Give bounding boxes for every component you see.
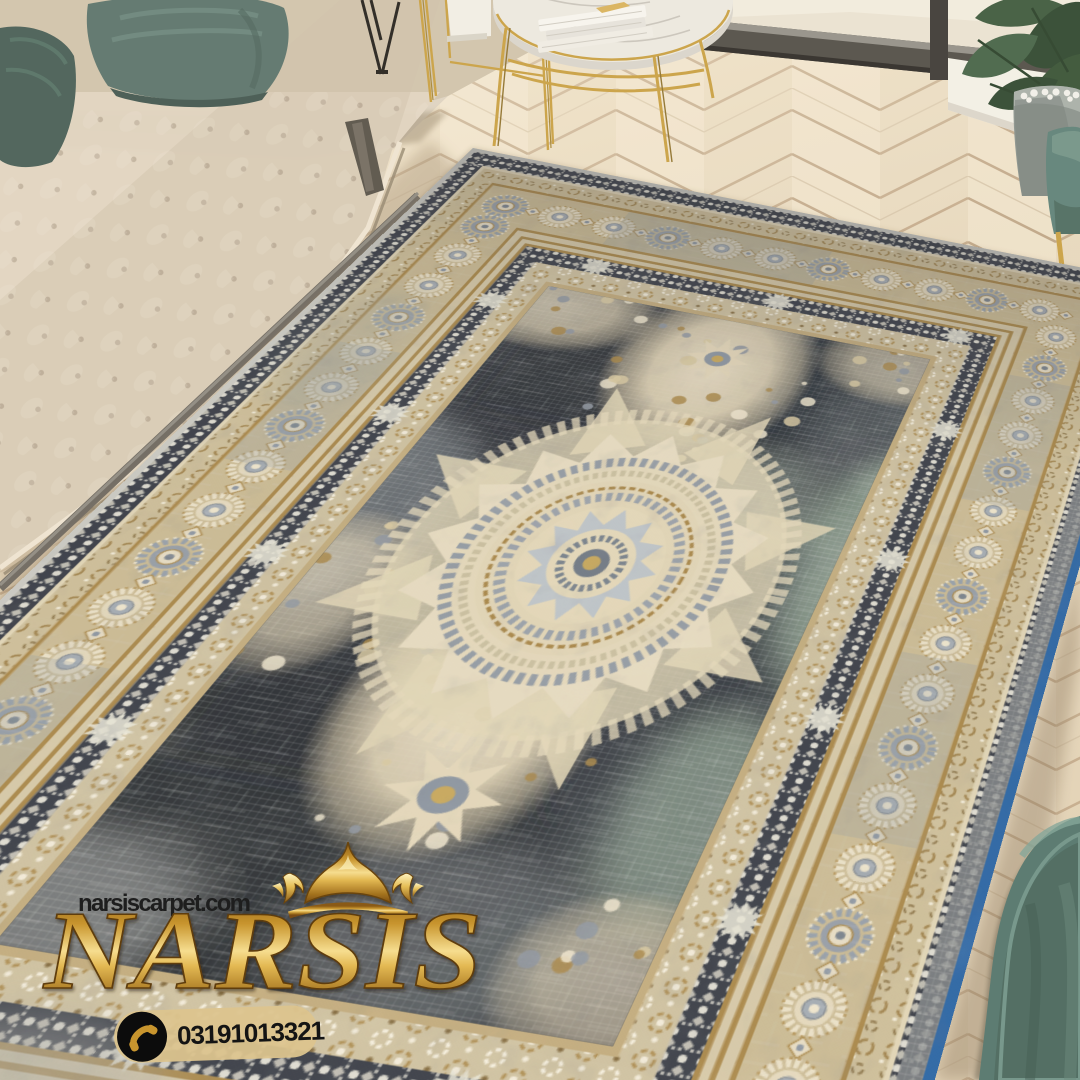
svg-text:NARSIS: NARSIS: [42, 889, 482, 1013]
svg-text:03191013321: 03191013321: [177, 1015, 326, 1050]
